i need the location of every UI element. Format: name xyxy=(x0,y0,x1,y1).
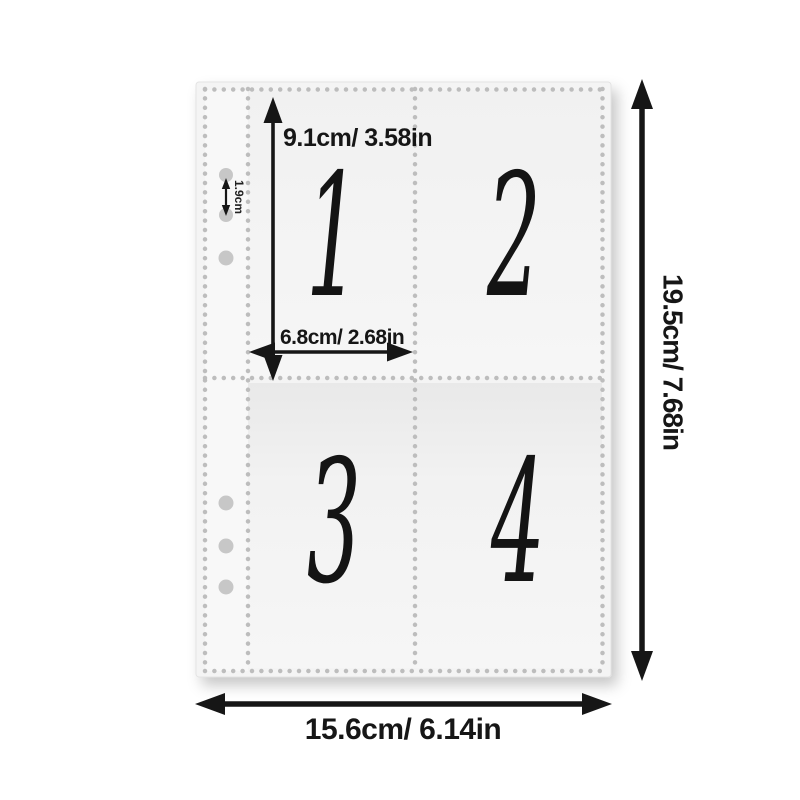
page-width-annotation: 15.6cm/ 6.14in xyxy=(195,693,612,746)
hole-spacing-annotation: 1.9cm xyxy=(222,178,246,216)
binder-sleeve-diagram: 1 2 3 4 1.9cm 9.1cm/ 3.58in xyxy=(0,0,800,800)
binder-hole xyxy=(219,580,234,595)
hole-spacing-label: 1.9cm xyxy=(232,180,246,214)
pocket-number-3-text: 3 xyxy=(307,423,361,622)
pocket-number-4-text: 4 xyxy=(490,423,545,622)
pocket-number-3: 3 xyxy=(307,423,361,622)
pocket-number-1: 1 xyxy=(306,137,360,336)
page-height-label: 19.5cm/ 7.68in xyxy=(658,274,689,450)
product-image: 1 2 3 4 1.9cm 9.1cm/ 3.58in xyxy=(0,0,800,800)
pocket-width-label: 6.8cm/ 2.68in xyxy=(280,326,404,349)
binder-hole xyxy=(219,496,234,511)
pocket-height-label: 9.1cm/ 3.58in xyxy=(283,124,432,152)
arrow-up-icon xyxy=(631,79,653,109)
pocket-number-1-text: 1 xyxy=(306,137,360,336)
pocket-number-4: 4 xyxy=(490,423,545,622)
page-width-label: 15.6cm/ 6.14in xyxy=(305,713,501,746)
page-height-annotation: 19.5cm/ 7.68in xyxy=(631,79,689,681)
binder-hole xyxy=(219,251,234,266)
arrow-left-icon xyxy=(195,693,225,715)
arrow-right-icon xyxy=(582,693,612,715)
binder-sleeve xyxy=(196,82,611,677)
pocket-number-2-text: 2 xyxy=(486,137,541,336)
pocket-number-2: 2 xyxy=(486,137,541,336)
binder-hole xyxy=(219,539,234,554)
arrow-down-icon xyxy=(631,651,653,681)
